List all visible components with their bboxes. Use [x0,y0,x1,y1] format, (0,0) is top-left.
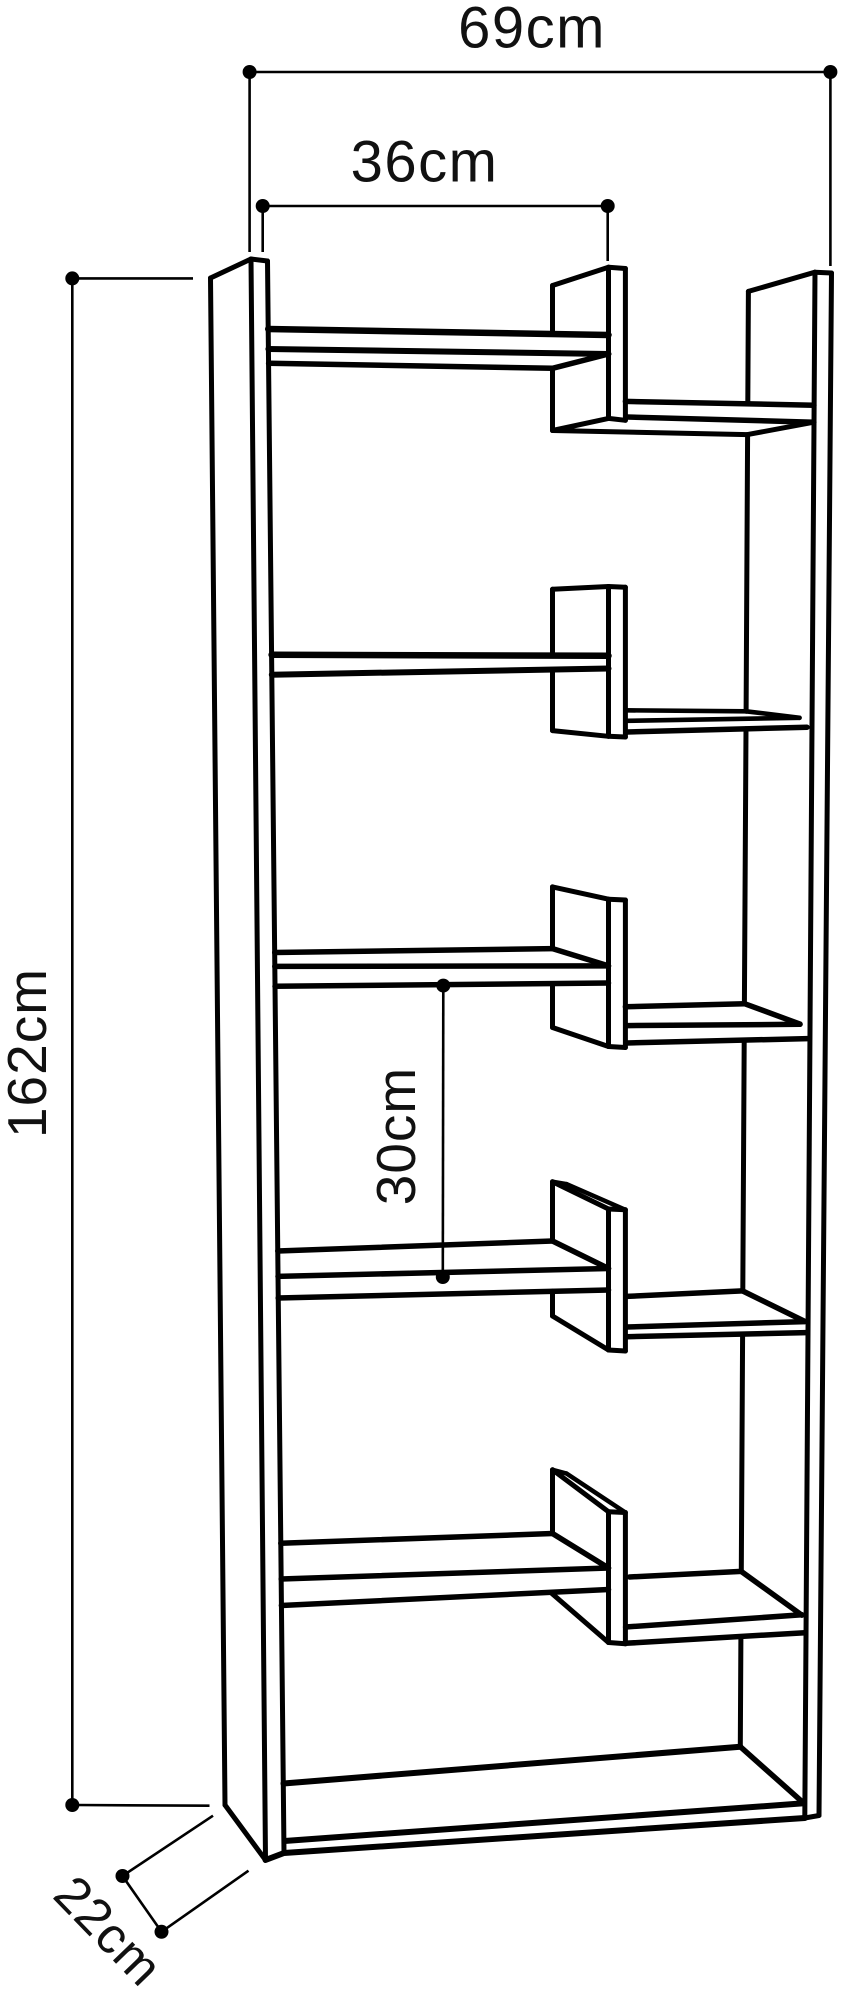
svg-text:30cm: 30cm [365,1067,427,1206]
svg-text:162cm: 162cm [0,968,58,1138]
svg-text:36cm: 36cm [351,130,499,195]
svg-text:69cm: 69cm [458,0,606,61]
